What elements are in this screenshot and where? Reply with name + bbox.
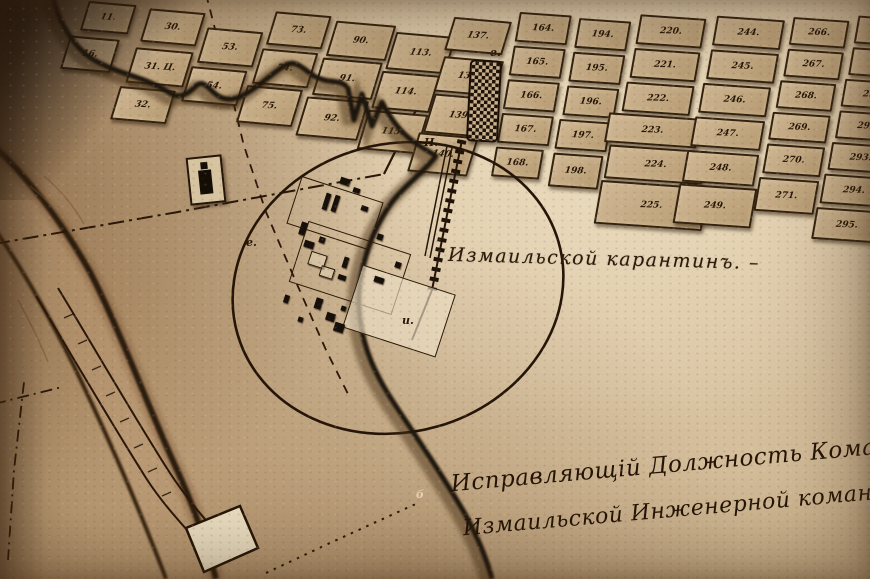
photo-vignette <box>0 0 870 579</box>
map-photo: 11.16.30.31. Ц.32.53.54.73.74.75.90.91.9… <box>0 0 870 579</box>
